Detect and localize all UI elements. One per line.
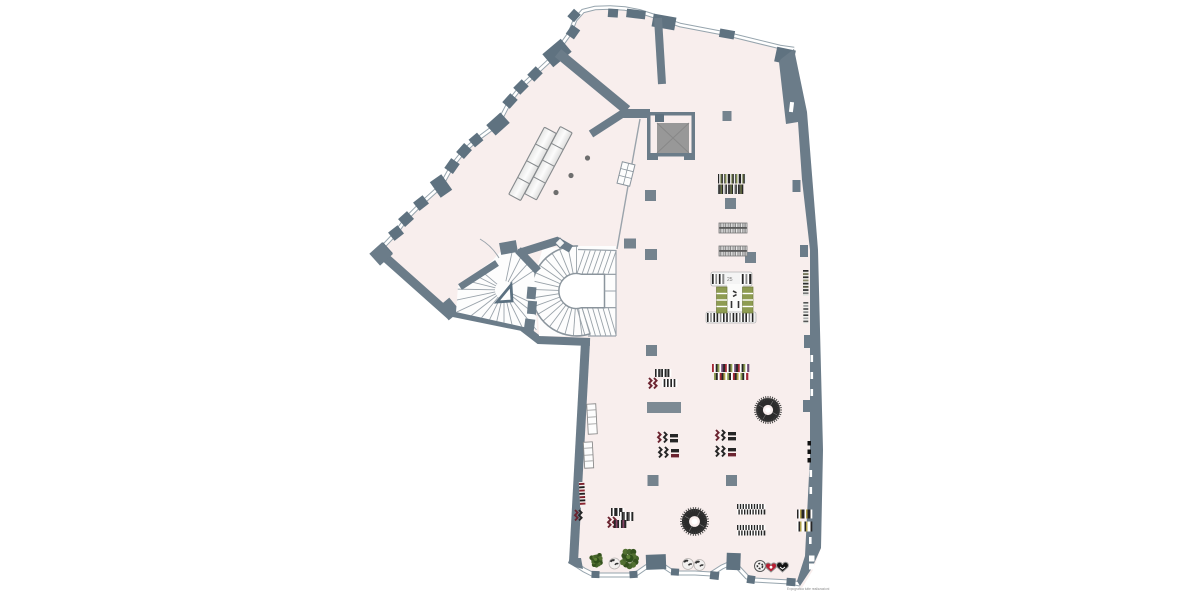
svg-text:25: 25 (727, 277, 733, 283)
svg-text:Expografica tutte realizzazion: Expografica tutte realizzazioni (787, 587, 830, 591)
